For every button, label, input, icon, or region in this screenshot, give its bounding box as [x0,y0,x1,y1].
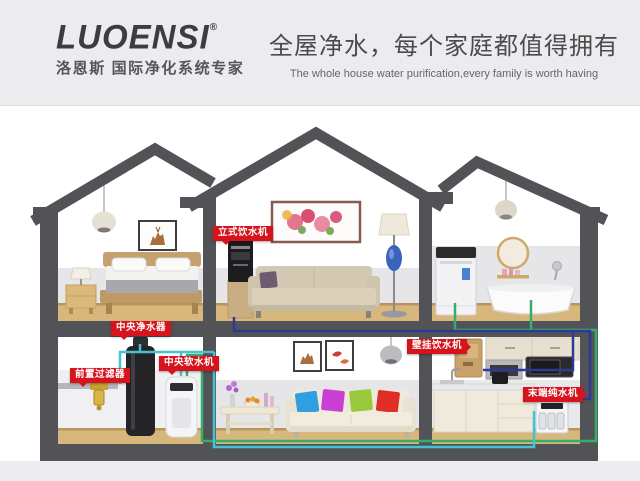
koi-art [326,341,353,370]
central-softener-unit [166,377,197,437]
sink [440,380,464,384]
pillow-magenta [321,389,345,412]
header: LUOENSI® 洛恩斯 国际净化系统专家 全屋净水，每个家庭都值得拥有 The… [0,0,640,106]
ground [0,461,640,481]
registered-mark: ® [210,22,217,33]
poster: LUOENSI® 洛恩斯 国际净化系统专家 全屋净水，每个家庭都值得拥有 The… [0,0,640,481]
brand-tagline: 洛恩斯 国际净化系统专家 [56,57,244,78]
left-roof [33,149,213,221]
slogan-block: 全屋净水，每个家庭都值得拥有 The whole house water pur… [258,26,630,80]
label-standing-dispenser: 立式饮水机 [213,226,273,241]
colorful-sofa [286,389,416,437]
kettle [492,372,508,384]
pillow-red [376,390,400,414]
mirror [498,238,528,268]
pendant-lamp [380,346,402,365]
label-wall-dispenser: 壁挂饮水机 [407,339,467,354]
pendant-lamp [495,200,517,220]
upper-left-partition [203,196,216,321]
sofa [248,266,380,318]
peony-painting [272,202,360,242]
pillow-blue [295,391,320,415]
deer-art [294,342,321,371]
label-central-softener: 中央软水机 [159,356,219,371]
pillow-green [349,389,373,412]
microwave [526,357,573,377]
terminal-purifier-unit [536,399,568,433]
label-pre-filter: 前置过滤器 [70,368,130,383]
deer-painting [139,221,176,250]
upper-right-partition [419,192,432,321]
label-central-purifier: 中央净水器 [111,321,171,336]
right-roof [441,162,606,220]
brand-block: LUOENSI® 洛恩斯 国际净化系统专家 [56,20,244,78]
center-roof [189,133,443,207]
slogan-en: The whole house water purification,every… [258,68,630,80]
pendant-lamp [92,212,116,233]
slogan-cn: 全屋净水，每个家庭都值得拥有 [258,26,630,61]
label-terminal-purifier: 末端纯水机 [523,387,583,402]
brand-logo: LUOENSI [56,19,210,54]
